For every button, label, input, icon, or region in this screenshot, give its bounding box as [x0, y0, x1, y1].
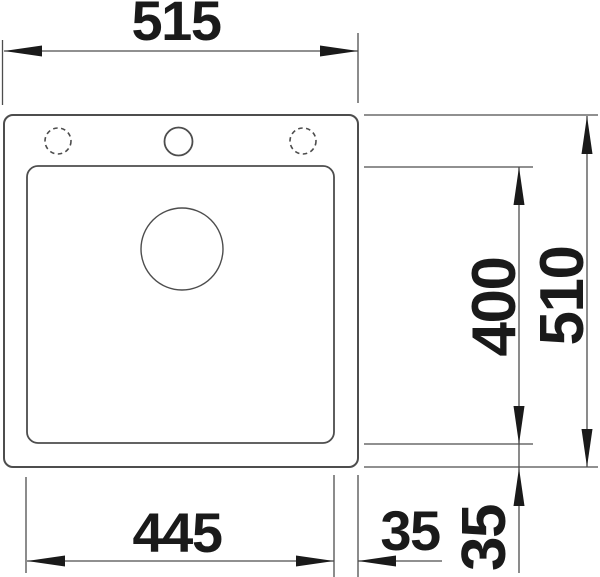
arrow-515-right	[320, 46, 358, 57]
label-offset-right: 35	[380, 499, 440, 562]
label-bowl-width: 445	[133, 501, 222, 564]
label-overall-height: 510	[528, 247, 597, 346]
tap-hole-center	[165, 128, 193, 156]
arrow-515-left	[4, 46, 42, 57]
sink-dimension-drawing: 515 510 400 445 35 35	[0, 0, 600, 577]
label-offset-bottom: 35	[450, 505, 519, 571]
sink-outer-rim-outline	[4, 115, 358, 467]
arrow-400-bottom	[514, 406, 525, 444]
label-bowl-height: 400	[460, 258, 529, 357]
arrow-400-top	[514, 167, 525, 205]
tap-hole-left-dashed	[45, 128, 71, 154]
arrow-35v-up	[514, 468, 525, 506]
label-overall-width: 515	[132, 0, 221, 52]
tap-hole-right-dashed	[290, 128, 316, 154]
arrow-445-right	[296, 556, 334, 567]
drain-hole-outline	[141, 208, 223, 290]
arrow-445-left	[27, 556, 65, 567]
arrow-510-top	[582, 116, 593, 154]
technical-drawing-canvas: 515 510 400 445 35 35	[0, 0, 600, 577]
arrow-510-bottom	[582, 429, 593, 467]
